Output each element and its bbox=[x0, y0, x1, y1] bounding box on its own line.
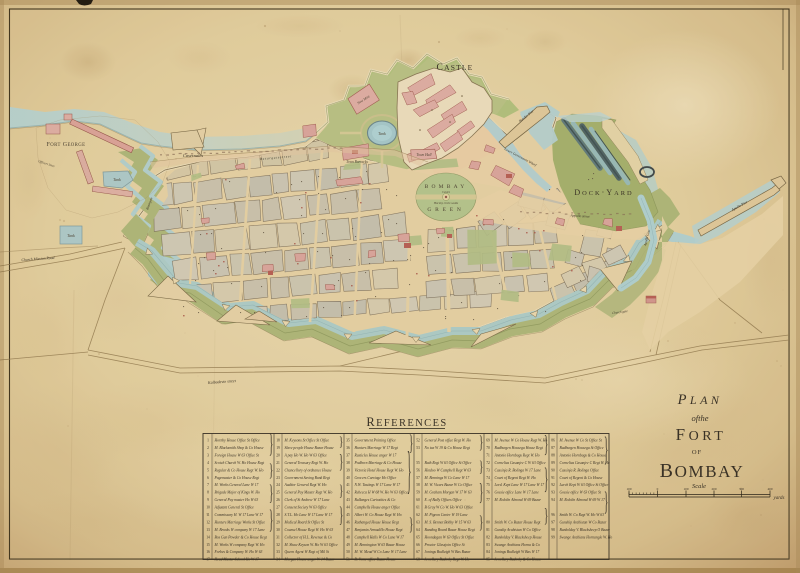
svg-text:13: 13 bbox=[206, 528, 210, 532]
svg-text:Antonio Hornbags & Co House: Antonio Hornbags & Co House bbox=[559, 453, 607, 457]
svg-text:37: 37 bbox=[346, 453, 350, 457]
svg-text:63: 63 bbox=[416, 521, 420, 525]
svg-text:41: 41 bbox=[346, 483, 350, 487]
svg-text:87: 87 bbox=[551, 446, 555, 450]
svg-text:29: 29 bbox=[276, 521, 280, 525]
svg-text:M. Bennington W 63 Bazar House: M. Bennington W 63 Bazar House bbox=[354, 543, 406, 547]
svg-text:57: 57 bbox=[416, 476, 420, 480]
svg-text:General Pay Master Regt W. Ho: General Pay Master Regt W. Ho bbox=[285, 491, 333, 495]
svg-text:74: 74 bbox=[486, 476, 490, 480]
svg-text:Jewellery Budooly & Co House: Jewellery Budooly & Co House bbox=[495, 558, 542, 562]
svg-text:Smith W. Co Regt W. Ho W 63: Smith W. Co Regt W. Ho W 63 bbox=[560, 513, 605, 517]
svg-text:M. Works W company Regt W. Ho: M. Works W company Regt W. Ho bbox=[214, 543, 265, 547]
svg-text:Scotch Church W. Ho House Regt: Scotch Church W. Ho House Regt bbox=[215, 461, 266, 465]
svg-text:60: 60 bbox=[416, 498, 420, 502]
svg-text:Swange Arabians Hornangle W. H: Swange Arabians Hornangle W. Ho bbox=[560, 535, 613, 539]
svg-text:}: } bbox=[339, 481, 343, 499]
svg-text:A pay Ho W. Ho W 63 Office: A pay Ho W. Ho W 63 Office bbox=[284, 453, 328, 457]
svg-text:M. Brooks W company W 17 Lane: M. Brooks W company W 17 Lane bbox=[214, 528, 266, 532]
svg-text:58: 58 bbox=[416, 483, 420, 487]
svg-text:Podborn Marriage & Co House: Podborn Marriage & Co House bbox=[354, 461, 403, 465]
svg-text:M. Keysons St Office St Office: M. Keysons St Office St Office bbox=[284, 439, 330, 443]
svg-text:Head Master School Ho W 17: Head Master School Ho W 17 bbox=[214, 558, 260, 562]
svg-text:Jewellery Budooly Regt W. Ho: Jewellery Budooly Regt W. Ho bbox=[425, 558, 470, 562]
svg-text:Gossie office Lane W 17 Lane: Gossie office Lane W 17 Lane bbox=[495, 491, 540, 495]
svg-text:Cornelius Casanjee C Regt W. H: Cornelius Casanjee C Regt W. Ho bbox=[560, 461, 610, 465]
svg-text:M. Blacksmith Shop & Co House: M. Blacksmith Shop & Co House bbox=[214, 446, 264, 450]
svg-text:}: } bbox=[604, 431, 608, 468]
svg-text:67: 67 bbox=[416, 550, 420, 554]
svg-text:22: 22 bbox=[276, 468, 280, 472]
svg-text:Counsel House Regt W. Ho W 63: Counsel House Regt W. Ho W 63 bbox=[285, 528, 334, 532]
svg-text:Banding Board Bazar House Regt: Banding Board Bazar House Regt bbox=[425, 528, 476, 532]
svg-text:ofthe: ofthe bbox=[692, 413, 709, 423]
svg-text:Bullanges Curiosities & Co: Bullanges Curiosities & Co bbox=[355, 498, 396, 502]
svg-text:M. Pigeon Carter W 19 Lane: M. Pigeon Carter W 19 Lane bbox=[424, 513, 468, 517]
svg-text:3: 3 bbox=[207, 453, 209, 457]
svg-text:Rusticles House anger W 17: Rusticles House anger W 17 bbox=[354, 453, 397, 457]
svg-text:}: } bbox=[544, 431, 548, 457]
svg-text:Scale: Scale bbox=[692, 483, 706, 490]
svg-text:73: 73 bbox=[486, 468, 490, 472]
svg-text:PLAN: PLAN bbox=[677, 392, 723, 408]
svg-text:83: 83 bbox=[486, 543, 490, 547]
svg-text:68: 68 bbox=[416, 558, 420, 562]
svg-text:Adjutant General St Office: Adjutant General St Office bbox=[214, 506, 255, 510]
svg-text:71: 71 bbox=[486, 453, 490, 457]
svg-text:Gunship Arabistan W Co Bazar: Gunship Arabistan W Co Bazar bbox=[560, 521, 607, 525]
svg-text:}: } bbox=[269, 480, 273, 505]
svg-text:50: 50 bbox=[346, 550, 350, 554]
svg-text:23: 23 bbox=[276, 476, 280, 480]
svg-text:Commissary H. W 17 Lane W 17: Commissary H. W 17 Lane W 17 bbox=[215, 513, 264, 517]
svg-text:53: 53 bbox=[416, 446, 420, 450]
svg-text:E. of Bally Offices Office: E. of Bally Offices Office bbox=[424, 498, 462, 502]
svg-text:Budburgen Housega St Office: Budburgen Housega St Office bbox=[560, 446, 604, 450]
svg-text:}: } bbox=[339, 451, 343, 473]
svg-text:47: 47 bbox=[346, 528, 350, 532]
svg-text:Hoondagan W 63 Office St Offic: Hoondagan W 63 Office St Office bbox=[424, 535, 475, 539]
svg-text:39: 39 bbox=[346, 468, 350, 472]
svg-text:70: 70 bbox=[486, 446, 490, 450]
svg-text:200: 200 bbox=[711, 487, 716, 491]
svg-text:}: } bbox=[479, 479, 483, 505]
svg-text:Chancellory of ordnance House: Chancellory of ordnance House bbox=[285, 468, 332, 472]
svg-text:Gunslip Arabistan W Co Office: Gunslip Arabistan W Co Office bbox=[495, 528, 542, 532]
svg-text:Collector of H.L. Revenue & Co: Collector of H.L. Revenue & Co bbox=[285, 535, 333, 539]
svg-text:49: 49 bbox=[346, 543, 350, 547]
svg-text:Court of Regent & Co House: Court of Regent & Co House bbox=[560, 476, 603, 480]
svg-text:30: 30 bbox=[276, 528, 280, 532]
svg-text:REFERENCES: REFERENCES bbox=[366, 415, 447, 429]
svg-text:31: 31 bbox=[276, 535, 280, 539]
svg-text:General Post office Regt W. Ho: General Post office Regt W. Ho bbox=[425, 439, 472, 443]
svg-text:15: 15 bbox=[206, 543, 210, 547]
svg-text:93: 93 bbox=[551, 491, 555, 495]
svg-text:Campbell Halls W Co Lane W 17: Campbell Halls W Co Lane W 17 bbox=[355, 535, 405, 539]
svg-text:Cassinja R. Bolinga Office: Cassinja R. Bolinga Office bbox=[560, 468, 600, 472]
svg-text:14: 14 bbox=[206, 535, 210, 539]
svg-text:Clerk of St Andrew W 17 Lane: Clerk of St Andrew W 17 Lane bbox=[285, 498, 330, 502]
svg-text:2: 2 bbox=[207, 446, 209, 450]
svg-text:Antonio Hornbags Regt W. Ho: Antonio Hornbags Regt W. Ho bbox=[494, 453, 540, 457]
svg-text:Bath Regt W 63 Office St Offic: Bath Regt W 63 Office St Office bbox=[425, 461, 472, 465]
svg-text:}: } bbox=[544, 505, 548, 527]
svg-text:12: 12 bbox=[206, 521, 210, 525]
svg-text:25: 25 bbox=[276, 491, 280, 495]
svg-text:20: 20 bbox=[276, 453, 280, 457]
svg-text:Brigade Major of Kings W. Ho: Brigade Major of Kings W. Ho bbox=[215, 491, 260, 495]
svg-text:Pagemaster & Co House Regt: Pagemaster & Co House Regt bbox=[214, 476, 261, 480]
svg-text:66: 66 bbox=[416, 543, 420, 547]
svg-text:Foreign House W 63 Office St: Foreign House W 63 Office St bbox=[214, 453, 260, 457]
svg-text:}: } bbox=[339, 502, 343, 527]
svg-text:400: 400 bbox=[767, 487, 772, 491]
svg-text:10: 10 bbox=[206, 506, 210, 510]
svg-text:6: 6 bbox=[207, 476, 209, 480]
svg-text:96: 96 bbox=[551, 513, 555, 517]
svg-text:CASTLE: CASTLE bbox=[437, 63, 474, 73]
svg-text:M. Rololin Almond W 69 Bazar: M. Rololin Almond W 69 Bazar bbox=[494, 498, 542, 502]
svg-text:Lord. Kept Lane W 17 Lane W 17: Lord. Kept Lane W 17 Lane W 17 bbox=[494, 483, 545, 487]
svg-text:M. Avenue W Co St Office St: M. Avenue W Co St Office St bbox=[559, 439, 603, 443]
svg-text:72: 72 bbox=[486, 461, 490, 465]
svg-text:BOMBAY: BOMBAY bbox=[660, 460, 745, 482]
svg-text:Jonings Budleigh W Bas Bazar: Jonings Budleigh W Bas Bazar bbox=[425, 550, 471, 554]
svg-text:40: 40 bbox=[346, 476, 350, 480]
svg-text:62: 62 bbox=[416, 513, 420, 517]
svg-text:}: } bbox=[409, 515, 413, 535]
svg-text:M. S. Bennet Bobby W 15 W 63: M. S. Bennet Bobby W 15 W 63 bbox=[424, 521, 472, 525]
svg-text:82: 82 bbox=[486, 535, 490, 539]
svg-text:46: 46 bbox=[346, 521, 350, 525]
svg-text:100: 100 bbox=[683, 487, 688, 491]
svg-text:24: 24 bbox=[276, 483, 280, 487]
svg-text:84: 84 bbox=[486, 550, 490, 554]
svg-text:M. W. Mead W Co Lane W 17 Lane: M. W. Mead W Co Lane W 17 Lane bbox=[354, 550, 408, 554]
svg-text:61: 61 bbox=[416, 506, 420, 510]
svg-text:General Pay master Ho W 63: General Pay master Ho W 63 bbox=[215, 498, 259, 502]
svg-text:81: 81 bbox=[486, 528, 490, 532]
svg-text:General Treasury Regt W. Ho: General Treasury Regt W. Ho bbox=[285, 461, 329, 465]
svg-text:55: 55 bbox=[416, 461, 420, 465]
svg-text:26: 26 bbox=[276, 498, 280, 502]
svg-text:Jonings Budleigh W Bas W 17: Jonings Budleigh W Bas W 17 bbox=[495, 550, 540, 554]
svg-text:86: 86 bbox=[551, 439, 555, 443]
svg-text:64: 64 bbox=[416, 528, 420, 532]
svg-text:Albert W. Co House Regt W. Ho: Albert W. Co House Regt W. Ho bbox=[354, 513, 402, 517]
svg-text:M. W. Vicars Bazar W Co Office: M. W. Vicars Bazar W Co Office bbox=[424, 483, 473, 487]
svg-text:No tax W 19 & Co House Regt: No tax W 19 & Co House Regt bbox=[424, 446, 471, 450]
svg-text:8: 8 bbox=[207, 491, 209, 495]
svg-text:Hindoo W Campbell Regt W 63: Hindoo W Campbell Regt W 63 bbox=[424, 468, 472, 472]
svg-text:}: } bbox=[479, 457, 483, 475]
svg-text:Rathanged House House Regt: Rathanged House House Regt bbox=[354, 521, 400, 525]
svg-text:M. Avenue W Co House Regt W. H: M. Avenue W Co House Regt W. Ho bbox=[494, 439, 548, 443]
svg-text:99: 99 bbox=[551, 535, 555, 539]
svg-text:17: 17 bbox=[206, 558, 210, 562]
svg-text:M. Graham Morgan W 17 W 63: M. Graham Morgan W 17 W 63 bbox=[424, 491, 472, 495]
svg-text:91: 91 bbox=[551, 476, 555, 480]
svg-text:45: 45 bbox=[346, 513, 350, 517]
svg-text:1: 1 bbox=[207, 439, 209, 443]
svg-text:42: 42 bbox=[346, 491, 350, 495]
svg-text:4: 4 bbox=[207, 461, 209, 465]
svg-text:M. Rololin Almond W 69 W 17: M. Rololin Almond W 69 W 17 bbox=[559, 498, 605, 502]
svg-text:}: } bbox=[544, 461, 548, 495]
svg-text:44: 44 bbox=[346, 506, 350, 510]
svg-text:Slave people House Bazar House: Slave people House Bazar House bbox=[285, 446, 335, 450]
svg-text:}: } bbox=[407, 442, 411, 499]
svg-text:19: 19 bbox=[276, 446, 280, 450]
svg-text:}: } bbox=[339, 433, 343, 450]
svg-text:Consent Society W 63 Office: Consent Society W 63 Office bbox=[285, 506, 328, 510]
svg-text:}: } bbox=[269, 431, 273, 459]
svg-text:yards: yards bbox=[773, 496, 785, 501]
svg-text:43: 43 bbox=[346, 498, 350, 502]
svg-text:36: 36 bbox=[346, 446, 350, 450]
svg-text:}: } bbox=[479, 433, 483, 453]
svg-text:90: 90 bbox=[551, 468, 555, 472]
svg-text:Government Printing Office: Government Printing Office bbox=[355, 439, 397, 443]
svg-text:Hornby House Office St Office: Hornby House Office St Office bbox=[214, 439, 261, 443]
svg-text:Government Saving Bank Regt: Government Saving Bank Regt bbox=[285, 476, 331, 480]
svg-text:DOCK·YARD: DOCK·YARD bbox=[574, 188, 633, 197]
svg-text:69: 69 bbox=[486, 439, 490, 443]
svg-text:48: 48 bbox=[346, 535, 350, 539]
svg-text:Hunters Marriage Works St Offi: Hunters Marriage Works St Office bbox=[214, 521, 266, 525]
svg-text:38: 38 bbox=[346, 461, 350, 465]
svg-text:M. Bennings W Co Lane W 17: M. Bennings W Co Lane W 17 bbox=[424, 476, 470, 480]
svg-text:}: } bbox=[479, 513, 483, 533]
svg-text:M. Shaw Keyson W. Ho W 63 Offi: M. Shaw Keyson W. Ho W 63 Office bbox=[284, 543, 339, 547]
svg-text:94: 94 bbox=[551, 498, 555, 502]
svg-text:77: 77 bbox=[486, 498, 490, 502]
svg-text:Benjamin Armadillo House Regt: Benjamin Armadillo House Regt bbox=[355, 528, 404, 532]
svg-text:76: 76 bbox=[486, 491, 490, 495]
svg-text:Morgan House anger W 14 Bazar: Morgan House anger W 14 Bazar bbox=[284, 558, 336, 562]
svg-text:Casernales: Casernales bbox=[183, 153, 203, 158]
svg-text:N.W. Tastings W 17 Lane W 17: N.W. Tastings W 17 Lane W 17 bbox=[354, 483, 401, 487]
svg-text:Court of Regent Regt W. Ho: Court of Regent Regt W. Ho bbox=[495, 476, 536, 480]
svg-text:52: 52 bbox=[416, 439, 420, 443]
svg-text:Bunkolday V. Blacksheep House: Bunkolday V. Blacksheep House bbox=[495, 535, 543, 539]
svg-text:28: 28 bbox=[276, 513, 280, 517]
svg-text:32: 32 bbox=[276, 543, 280, 547]
svg-text:18: 18 bbox=[276, 439, 280, 443]
svg-text:OF: OF bbox=[692, 449, 702, 456]
svg-text:33: 33 bbox=[276, 550, 280, 554]
svg-text:}: } bbox=[269, 461, 273, 481]
svg-text:Cornelius Casanjee C W 63 Offi: Cornelius Casanjee C W 63 Office bbox=[495, 461, 546, 465]
svg-text:M. Works General Lane W 17: M. Works General Lane W 17 bbox=[214, 483, 259, 487]
svg-text:}: } bbox=[604, 489, 608, 517]
svg-text:75: 75 bbox=[486, 483, 490, 487]
svg-text:Auditor General Regt W. Ho: Auditor General Regt W. Ho bbox=[284, 483, 327, 487]
svg-text:Cassinja R. Bolinga W 17 Lane: Cassinja R. Bolinga W 17 Lane bbox=[495, 468, 542, 472]
svg-text:7: 7 bbox=[207, 483, 209, 487]
svg-text:B. Vome office Bazar House: B. Vome office Bazar House bbox=[355, 558, 397, 562]
svg-text:100: 100 bbox=[626, 487, 631, 491]
svg-text:Proctor Glassjoin Office St: Proctor Glassjoin Office St bbox=[424, 543, 466, 547]
svg-text:16: 16 bbox=[206, 550, 210, 554]
svg-text:S.T.L. Ho Lane W 17 Lane W 17: S.T.L. Ho Lane W 17 Lane W 17 bbox=[285, 513, 333, 517]
svg-text:}: } bbox=[269, 507, 273, 535]
svg-text:21: 21 bbox=[276, 461, 280, 465]
svg-text:Campbells House anger Office: Campbells House anger Office bbox=[355, 506, 401, 510]
svg-text:98: 98 bbox=[551, 528, 555, 532]
svg-text:Bos Gun Powder & Co House Regt: Bos Gun Powder & Co House Regt bbox=[215, 535, 268, 539]
svg-text:5: 5 bbox=[207, 468, 209, 472]
svg-text:Budburgen Housega House Regt: Budburgen Housega House Regt bbox=[495, 446, 544, 450]
svg-text:Medical Board St Office St: Medical Board St Office St bbox=[284, 521, 326, 525]
svg-text:Forbes & Company W. Ho W 63: Forbes & Company W. Ho W 63 bbox=[214, 550, 263, 554]
svg-text:34: 34 bbox=[276, 558, 280, 562]
svg-text:89: 89 bbox=[551, 461, 555, 465]
svg-text:97: 97 bbox=[551, 521, 555, 525]
svg-text:Victoria Hotel House Regt W. H: Victoria Hotel House Regt W. Ho bbox=[355, 468, 404, 472]
svg-text:300: 300 bbox=[739, 487, 744, 491]
svg-text:80: 80 bbox=[486, 521, 490, 525]
svg-text:85: 85 bbox=[486, 558, 490, 562]
svg-text:Grocers Carriage Ho Office: Grocers Carriage Ho Office bbox=[355, 476, 397, 480]
svg-text:Queen Agent W Regt of Mil St: Queen Agent W Regt of Mil St bbox=[285, 550, 330, 554]
svg-text:Gossie office W 63 Office St: Gossie office W 63 Office St bbox=[560, 491, 602, 495]
svg-text:51: 51 bbox=[346, 558, 350, 562]
svg-text:Rebecca H W 68 W. Ho W 63 Offi: Rebecca H W 68 W. Ho W 63 Office bbox=[354, 491, 409, 495]
svg-text:11: 11 bbox=[206, 513, 210, 517]
svg-text:Regular & Co House Regt W. Ho: Regular & Co House Regt W. Ho bbox=[214, 468, 264, 472]
svg-text:27: 27 bbox=[276, 506, 280, 510]
svg-text:88: 88 bbox=[551, 453, 555, 457]
svg-text:9: 9 bbox=[207, 498, 209, 502]
svg-text:65: 65 bbox=[416, 535, 420, 539]
svg-text:0: 0 bbox=[657, 487, 659, 491]
svg-text:Smith W. Co Bazar House Regt: Smith W. Co Bazar House Regt bbox=[495, 521, 542, 525]
svg-text:Lurch Kept W 63 Office St Offi: Lurch Kept W 63 Office St Office bbox=[559, 483, 609, 487]
svg-text:56: 56 bbox=[416, 468, 420, 472]
svg-text:Swange Arabians Horna & Co: Swange Arabians Horna & Co bbox=[495, 543, 541, 547]
svg-text:B Gray W Co W. Ho W 63 Office: B Gray W Co W. Ho W 63 Office bbox=[425, 506, 474, 510]
svg-text:Hunters Marriage W 17 Regt: Hunters Marriage W 17 Regt bbox=[354, 446, 399, 450]
svg-text:Bunkolday V. Blacksheep O Baza: Bunkolday V. Blacksheep O Bazar bbox=[560, 528, 611, 532]
svg-text:92: 92 bbox=[551, 483, 555, 487]
svg-text:59: 59 bbox=[416, 491, 420, 495]
svg-text:35: 35 bbox=[346, 439, 350, 443]
